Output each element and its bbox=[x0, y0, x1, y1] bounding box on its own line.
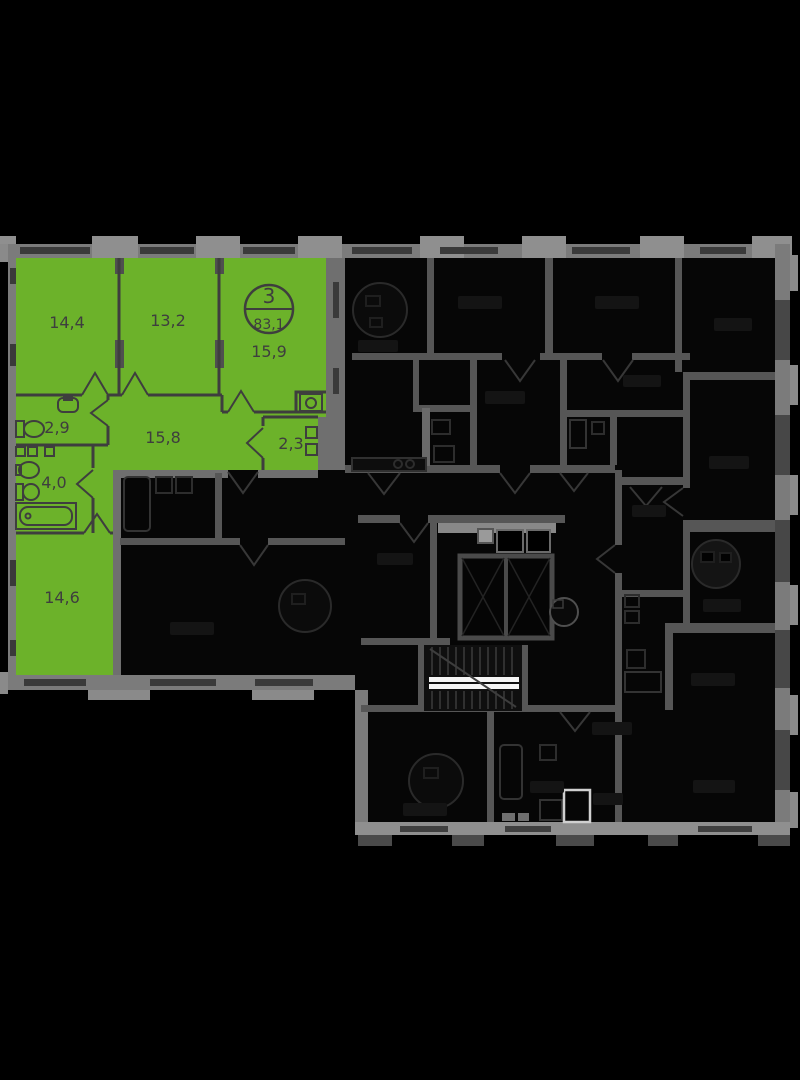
floor-plan-svg: 14,4 13,2 15,9 2,9 15,8 2,3 4,0 14,6 3 8… bbox=[0, 0, 800, 1080]
stairwell bbox=[424, 645, 522, 711]
threshold-mark-2 bbox=[518, 813, 529, 821]
apartment-badge: 3 83,1 bbox=[245, 284, 293, 333]
room-area-label-bath: 4,0 bbox=[41, 473, 66, 492]
badge-room-count: 3 bbox=[263, 284, 276, 308]
threshold-mark-1 bbox=[502, 813, 515, 821]
floorplan-stage: 14,4 13,2 15,9 2,9 15,8 2,3 4,0 14,6 3 8… bbox=[0, 0, 800, 1080]
room-area-label-4: 14,6 bbox=[44, 588, 80, 607]
room-area-label-hall: 15,8 bbox=[145, 428, 181, 447]
trash-chute bbox=[550, 598, 578, 626]
room-area-label-2: 13,2 bbox=[150, 311, 186, 330]
room-area-label-1: 14,4 bbox=[49, 313, 85, 332]
elevator-door-1 bbox=[497, 530, 523, 552]
room-area-label-wc: 2,9 bbox=[44, 418, 69, 437]
room-area-label-3: 15,9 bbox=[251, 342, 287, 361]
badge-total-area: 83,1 bbox=[253, 317, 284, 333]
elevator-door-2 bbox=[527, 530, 550, 552]
stair-landing-strip-2 bbox=[429, 684, 519, 689]
room-area-label-storage: 2,3 bbox=[278, 434, 303, 453]
